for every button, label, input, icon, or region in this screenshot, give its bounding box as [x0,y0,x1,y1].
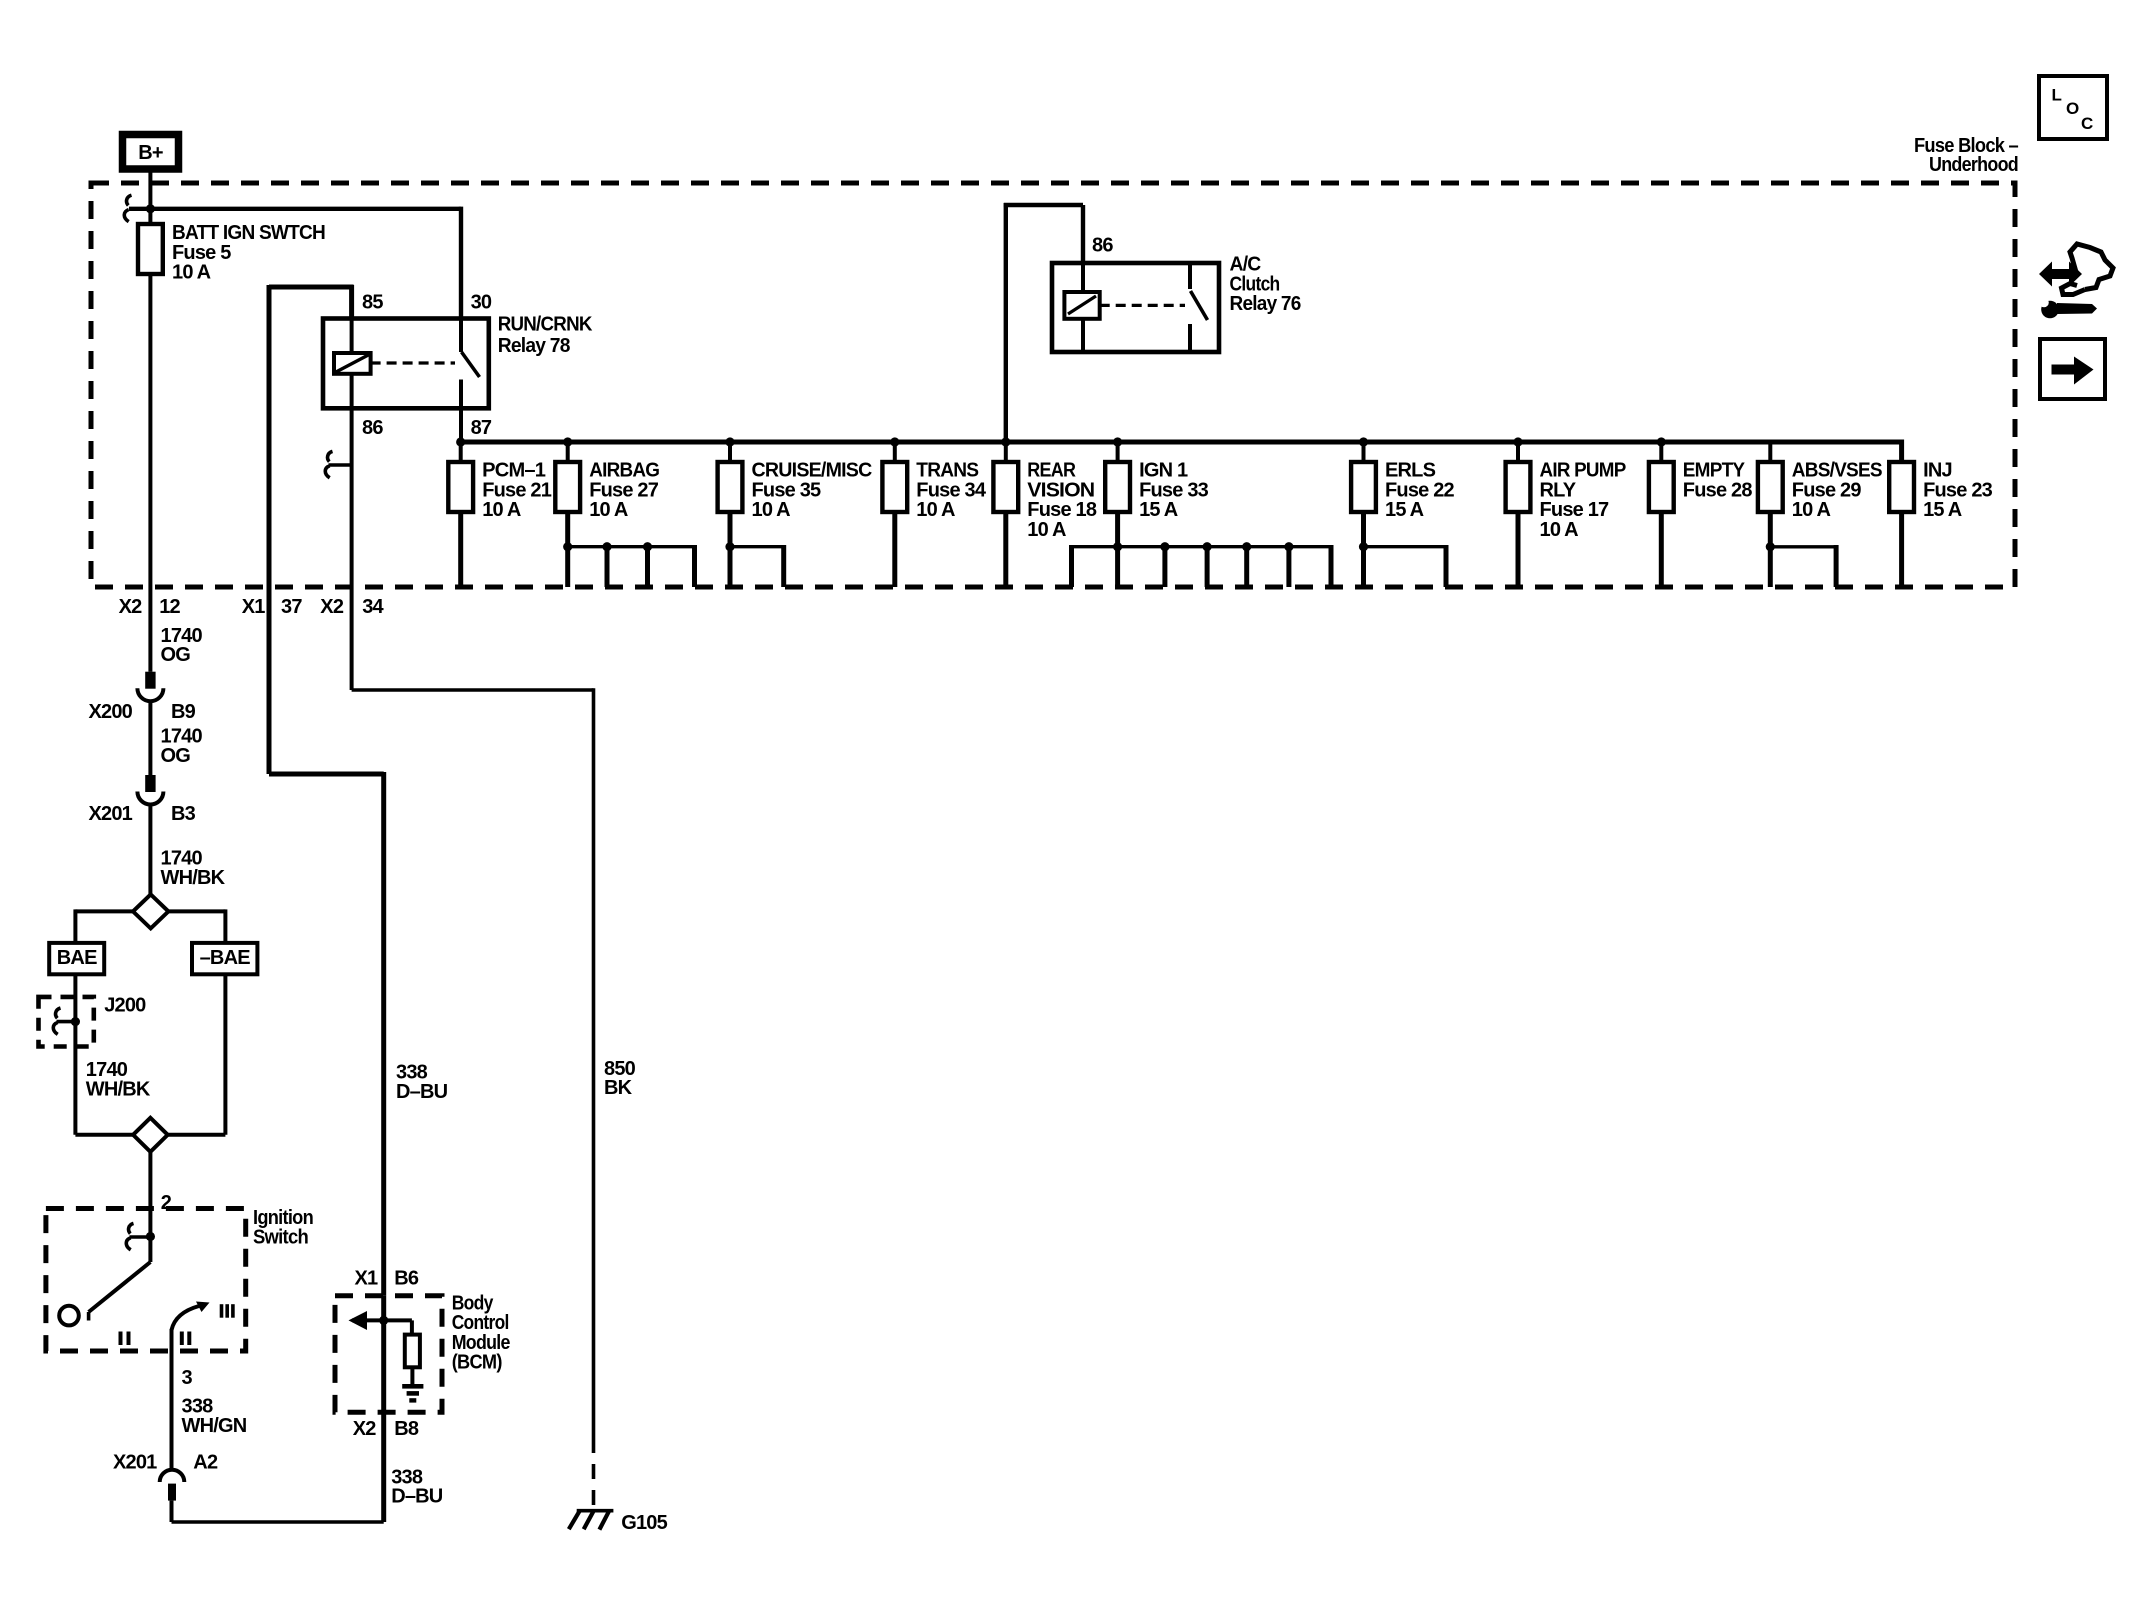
svg-text:X201: X201 [89,803,133,825]
svg-text:–BAE: –BAE [200,947,251,969]
svg-text:15 A: 15 A [1139,499,1178,521]
svg-text:B8: B8 [394,1418,419,1440]
svg-text:X2: X2 [320,596,344,618]
svg-text:EMPTY: EMPTY [1683,460,1746,482]
svg-text:12: 12 [159,596,180,618]
svg-text:PCM–1: PCM–1 [482,460,546,482]
svg-text:X1: X1 [355,1268,379,1290]
svg-text:BK: BK [604,1077,633,1099]
svg-text:OG: OG [161,644,191,666]
svg-text:Switch: Switch [253,1226,308,1248]
svg-text:15 A: 15 A [1385,499,1424,521]
svg-text:A/C: A/C [1230,254,1261,276]
svg-text:RLY: RLY [1540,479,1577,501]
svg-text:X2: X2 [353,1418,377,1440]
svg-text:J200: J200 [104,995,146,1017]
svg-text:Body: Body [452,1293,494,1315]
svg-text:87: 87 [471,417,492,439]
svg-text:Fuse 17: Fuse 17 [1540,499,1610,521]
svg-text:X200: X200 [89,701,133,723]
svg-text:B6: B6 [394,1268,419,1290]
svg-text:ABS/VSES: ABS/VSES [1792,460,1882,482]
svg-text:RUN/CRNK: RUN/CRNK [498,314,593,336]
svg-text:10 A: 10 A [589,499,628,521]
svg-text:30: 30 [471,292,492,314]
svg-text:Fuse 35: Fuse 35 [752,479,822,501]
svg-text:WH/BK: WH/BK [86,1079,151,1101]
svg-text:10 A: 10 A [172,262,211,284]
svg-text:L: L [2052,86,2062,105]
svg-text:34: 34 [362,596,384,618]
svg-text:Fuse 21: Fuse 21 [482,479,552,501]
svg-text:A2: A2 [193,1451,218,1473]
svg-text:INJ: INJ [1923,460,1952,482]
svg-text:Underhood: Underhood [1929,154,2018,176]
svg-text:B3: B3 [171,803,196,825]
svg-text:X2: X2 [119,596,143,618]
svg-text:Fuse 27: Fuse 27 [589,479,659,501]
svg-text:AIRBAG: AIRBAG [589,460,659,482]
svg-text:10 A: 10 A [1540,519,1579,541]
svg-text:CRUISE/MISC: CRUISE/MISC [752,460,872,482]
svg-text:Clutch: Clutch [1230,273,1280,295]
svg-text:D–BU: D–BU [396,1081,448,1103]
svg-text:C: C [2081,114,2093,133]
svg-text:O: O [2066,99,2079,118]
svg-text:10 A: 10 A [482,499,521,521]
svg-text:15 A: 15 A [1923,499,1962,521]
svg-text:X1: X1 [242,596,266,618]
svg-text:IGN 1: IGN 1 [1139,460,1188,482]
svg-text:ERLS: ERLS [1385,460,1436,482]
svg-text:B9: B9 [171,701,196,723]
svg-text:Fuse 34: Fuse 34 [916,479,987,501]
svg-text:WH/GN: WH/GN [182,1415,247,1437]
svg-text:37: 37 [281,596,302,618]
svg-text:86: 86 [1092,235,1113,257]
svg-text:BATT IGN SWTCH: BATT IGN SWTCH [172,222,325,244]
svg-text:(BCM): (BCM) [452,1352,502,1374]
svg-text:10 A: 10 A [752,499,791,521]
svg-text:10 A: 10 A [1792,499,1831,521]
svg-text:Control: Control [452,1312,509,1334]
svg-text:10 A: 10 A [916,499,955,521]
svg-text:B+: B+ [138,142,163,164]
svg-text:Fuse 5: Fuse 5 [172,242,231,264]
svg-text:Fuse 28: Fuse 28 [1683,479,1753,501]
svg-text:Fuse 23: Fuse 23 [1923,479,1993,501]
svg-text:D–BU: D–BU [391,1486,443,1508]
svg-text:3: 3 [182,1367,193,1389]
svg-text:Fuse 18: Fuse 18 [1027,499,1097,521]
svg-text:AIR PUMP: AIR PUMP [1540,460,1626,482]
svg-text:VISION: VISION [1027,479,1094,501]
svg-text:Module: Module [452,1332,511,1354]
svg-text:OG: OG [161,745,191,767]
svg-text:85: 85 [362,292,383,314]
svg-text:Relay 76: Relay 76 [1230,293,1302,315]
svg-text:REAR: REAR [1027,460,1076,482]
svg-text:Fuse 22: Fuse 22 [1385,479,1455,501]
svg-text:X201: X201 [113,1451,157,1473]
svg-text:Relay 78: Relay 78 [498,335,571,357]
svg-text:Fuse 33: Fuse 33 [1139,479,1209,501]
svg-text:BAE: BAE [57,947,97,969]
svg-text:G105: G105 [621,1512,667,1534]
svg-text:Fuse 29: Fuse 29 [1792,479,1862,501]
svg-text:TRANS: TRANS [916,460,978,482]
svg-text:86: 86 [362,417,383,439]
svg-text:10 A: 10 A [1027,519,1066,541]
svg-text:WH/BK: WH/BK [161,867,226,889]
